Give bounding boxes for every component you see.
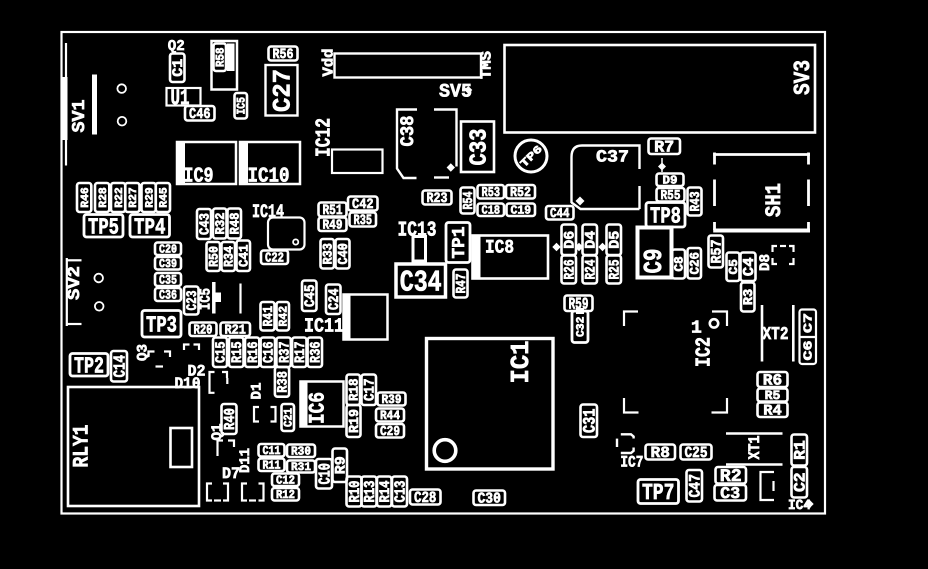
svg-text:C17: C17	[363, 379, 379, 402]
svg-text:R26: R26	[563, 260, 579, 280]
svg-text:R39: R39	[382, 392, 402, 407]
svg-text:R34: R34	[222, 246, 237, 267]
svg-text:R41: R41	[262, 306, 277, 327]
svg-text:TP5: TP5	[88, 214, 119, 240]
svg-text:C36: C36	[159, 288, 177, 303]
svg-text:R42: R42	[277, 306, 291, 327]
svg-text:R44: R44	[380, 408, 400, 423]
svg-text:C1: C1	[171, 58, 187, 76]
svg-text:C6: C6	[802, 341, 816, 361]
svg-text:C33: C33	[466, 129, 493, 166]
svg-text:R5: R5	[765, 388, 781, 403]
svg-text:D10: D10	[175, 375, 201, 393]
svg-text:R48: R48	[228, 212, 243, 234]
svg-text:TP1: TP1	[450, 226, 470, 258]
svg-text:C3: C3	[720, 484, 740, 503]
svg-text:C15: C15	[215, 341, 230, 363]
svg-text:R18: R18	[347, 378, 362, 401]
svg-text:1: 1	[691, 319, 702, 339]
svg-text:C29: C29	[380, 425, 400, 440]
svg-text:C28: C28	[414, 489, 437, 507]
svg-text:C22: C22	[265, 252, 284, 267]
svg-text:D4: D4	[584, 230, 600, 248]
svg-text:R56: R56	[273, 47, 294, 63]
svg-text:C2: C2	[791, 472, 809, 492]
svg-text:C43: C43	[199, 213, 214, 235]
svg-text:R23: R23	[427, 191, 448, 207]
svg-text:R24: R24	[584, 259, 600, 279]
svg-text:SH1: SH1	[762, 183, 787, 217]
svg-text:C42: C42	[352, 197, 374, 213]
svg-text:C20: C20	[159, 243, 177, 257]
svg-text:TP7: TP7	[642, 480, 675, 506]
svg-text:D7: D7	[222, 465, 240, 483]
svg-text:R50: R50	[207, 246, 222, 267]
svg-text:C8: C8	[673, 256, 687, 271]
svg-text:IC2: IC2	[693, 337, 716, 367]
svg-text:IC5: IC5	[235, 97, 249, 115]
svg-text:R9: R9	[334, 456, 350, 474]
svg-text:IC6: IC6	[305, 392, 330, 424]
svg-text:R25: R25	[608, 260, 624, 280]
svg-text:R11: R11	[263, 459, 281, 473]
svg-text:C19: C19	[511, 204, 532, 218]
svg-text:R3: R3	[741, 289, 756, 305]
svg-text:R49: R49	[323, 219, 343, 234]
svg-text:R28: R28	[98, 187, 110, 208]
svg-text:IC8: IC8	[485, 237, 514, 259]
svg-text:IC7: IC7	[620, 454, 643, 472]
svg-text:C32: C32	[576, 317, 588, 338]
svg-text:IC5: IC5	[198, 288, 215, 310]
svg-text:D1: D1	[249, 382, 265, 399]
svg-text:R4: R4	[763, 404, 782, 420]
svg-text:C26: C26	[688, 252, 703, 275]
svg-text:C38: C38	[397, 116, 419, 147]
svg-text:R19: R19	[348, 409, 363, 433]
svg-text:R33: R33	[321, 243, 336, 265]
svg-text:TP4: TP4	[134, 214, 166, 240]
svg-text:D8: D8	[758, 254, 774, 271]
svg-text:Q1: Q1	[210, 423, 226, 440]
svg-text:C46: C46	[189, 107, 211, 123]
svg-text:D11: D11	[238, 448, 254, 473]
svg-text:SV3: SV3	[790, 60, 816, 95]
svg-text:C21: C21	[282, 408, 296, 427]
svg-text:TP8: TP8	[650, 203, 681, 229]
svg-text:R54: R54	[462, 192, 477, 210]
svg-text:C34: C34	[400, 266, 442, 300]
svg-text:R1: R1	[791, 440, 809, 460]
svg-text:R43: R43	[689, 192, 704, 212]
svg-text:R15: R15	[230, 341, 246, 363]
svg-text:D5: D5	[608, 231, 624, 249]
svg-text:C39: C39	[159, 257, 177, 271]
svg-text:R46: R46	[80, 187, 92, 208]
svg-text:C24: C24	[327, 288, 343, 310]
svg-text:R31: R31	[291, 462, 311, 474]
svg-text:R7: R7	[654, 138, 674, 157]
svg-text:C11: C11	[263, 444, 281, 458]
svg-text:SV1: SV1	[70, 99, 90, 132]
svg-text:IC9: IC9	[184, 166, 214, 189]
svg-text:XT1: XT1	[746, 436, 764, 460]
svg-text:C41: C41	[237, 244, 252, 267]
svg-text:TP3: TP3	[146, 312, 177, 338]
svg-text:R35: R35	[354, 213, 373, 229]
svg-text:C25: C25	[685, 444, 708, 462]
svg-text:C4: C4	[740, 257, 758, 276]
svg-text:IC1: IC1	[506, 341, 536, 384]
svg-text:R52: R52	[510, 186, 531, 201]
svg-text:R47: R47	[455, 274, 470, 294]
svg-text:XT2: XT2	[763, 325, 789, 345]
svg-text:IC10: IC10	[248, 166, 290, 189]
svg-text:R36: R36	[309, 341, 325, 363]
svg-text:R12: R12	[276, 488, 295, 502]
svg-text:R30: R30	[291, 445, 311, 459]
svg-text:C44: C44	[550, 207, 570, 222]
svg-text:C5: C5	[727, 259, 741, 274]
svg-text:R32: R32	[213, 212, 228, 234]
svg-text:R8: R8	[651, 444, 670, 462]
svg-text:C47: C47	[686, 474, 704, 498]
svg-text:C9: C9	[639, 249, 669, 274]
svg-text:R57: R57	[710, 240, 726, 264]
svg-text:R20: R20	[194, 324, 213, 339]
svg-text:D9: D9	[663, 174, 678, 188]
svg-text:C31: C31	[582, 409, 601, 434]
svg-text:C30: C30	[477, 492, 501, 508]
svg-text:SV2: SV2	[66, 266, 85, 300]
svg-text:R58: R58	[214, 47, 228, 66]
svg-text:TP2: TP2	[74, 353, 104, 379]
svg-text:C12: C12	[276, 474, 295, 488]
svg-text:IC11: IC11	[304, 316, 344, 339]
svg-text:R6: R6	[763, 372, 782, 390]
svg-text:R38: R38	[276, 371, 292, 393]
svg-text:C14: C14	[111, 355, 130, 378]
svg-text:R53: R53	[482, 186, 501, 201]
svg-text:RLY1: RLY1	[70, 425, 95, 468]
svg-text:R27: R27	[128, 187, 140, 208]
svg-text:TMS: TMS	[479, 51, 496, 79]
svg-text:C45: C45	[303, 285, 319, 308]
svg-text:C35: C35	[159, 273, 177, 288]
svg-text:R45: R45	[158, 187, 170, 208]
svg-text:C27: C27	[269, 69, 298, 112]
svg-text:C13: C13	[392, 481, 410, 503]
svg-text:C18: C18	[482, 204, 501, 218]
svg-text:C37: C37	[596, 149, 629, 168]
svg-text:C40: C40	[337, 243, 352, 264]
svg-text:IC13: IC13	[398, 220, 437, 243]
svg-text:C7: C7	[802, 313, 816, 333]
